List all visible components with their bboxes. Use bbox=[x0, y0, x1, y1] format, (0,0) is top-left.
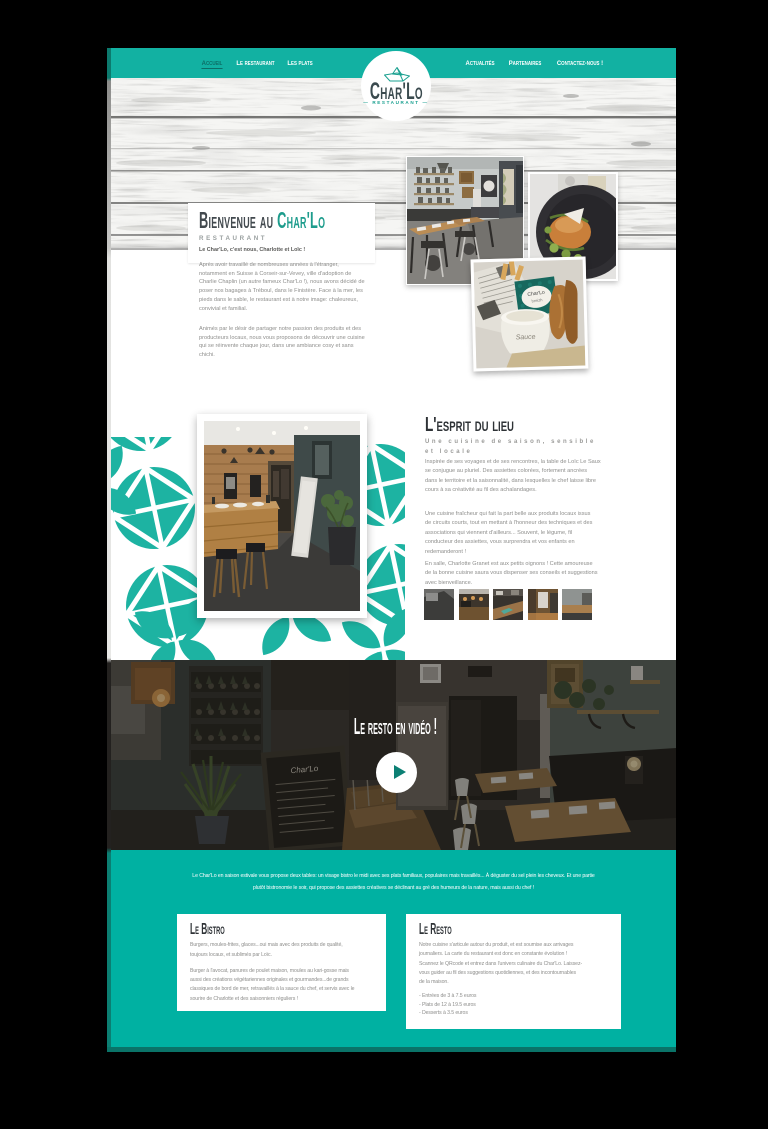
svg-text:Sauce: Sauce bbox=[516, 334, 536, 342]
